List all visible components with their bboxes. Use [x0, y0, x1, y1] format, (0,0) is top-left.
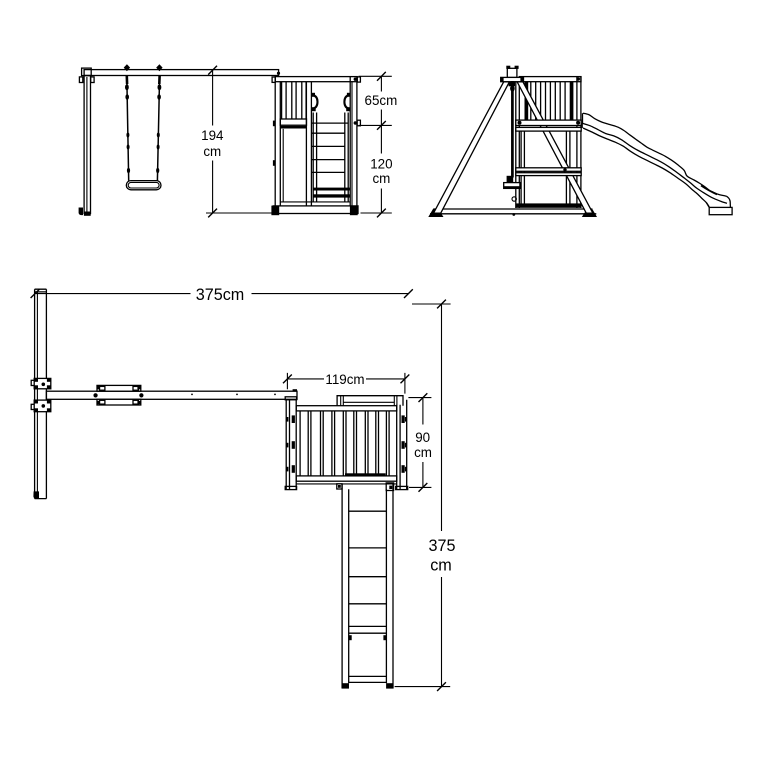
svg-text:cm: cm — [430, 557, 452, 575]
svg-text:375cm: 375cm — [196, 286, 245, 304]
svg-text:120: 120 — [370, 157, 392, 172]
svg-text:119cm: 119cm — [325, 372, 364, 387]
svg-text:65cm: 65cm — [365, 93, 398, 108]
svg-text:375: 375 — [428, 537, 455, 555]
svg-text:90: 90 — [415, 430, 430, 445]
svg-text:cm: cm — [372, 171, 390, 186]
svg-text:cm: cm — [414, 445, 432, 460]
svg-text:cm: cm — [203, 144, 221, 159]
svg-text:194: 194 — [201, 128, 224, 143]
